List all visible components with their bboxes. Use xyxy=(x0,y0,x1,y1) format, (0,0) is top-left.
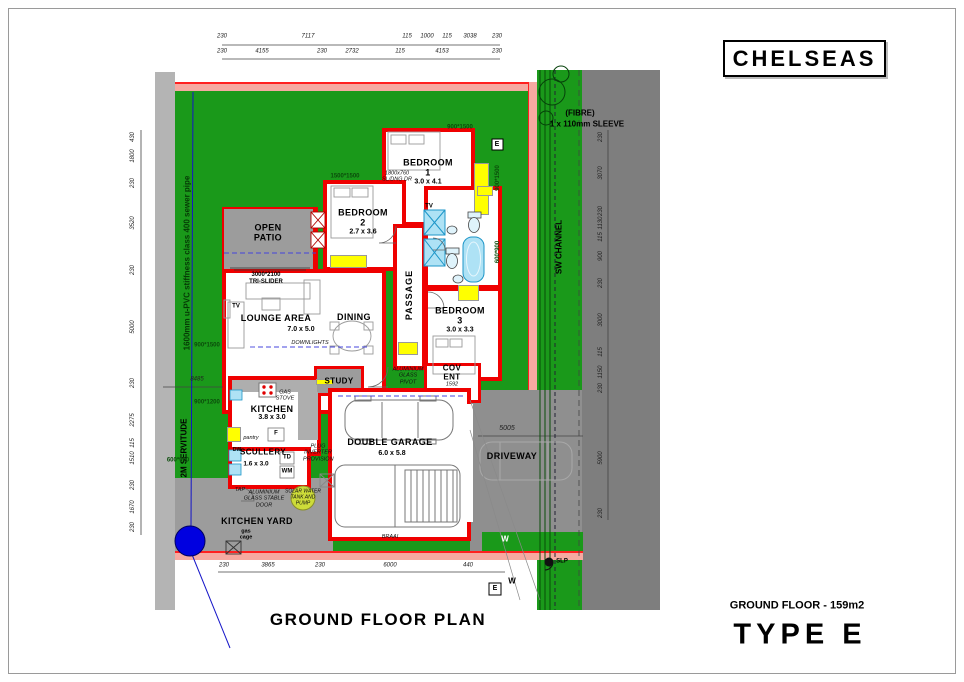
tri-slider-label: 3000*2100 TRI-SLIDER xyxy=(249,272,283,286)
dim-bottom-4: 440 xyxy=(463,563,473,570)
dim-top1-6: 230 xyxy=(492,34,502,41)
window-label-kitchen-left: 900*1200 xyxy=(194,400,220,407)
dim-top2-3: 2732 xyxy=(345,49,358,56)
garage-size: 6.0 x 5.8 xyxy=(378,450,405,458)
tv-label-lounge: TV xyxy=(232,304,240,311)
bedroom3-label: BEDROOM 3 3.0 x 3.3 xyxy=(435,306,485,335)
solar-tank-label: SOLAR WATER TANK AND PUMP xyxy=(285,489,321,506)
dim-right-5: 900 xyxy=(598,251,604,261)
dim-top2-0: 230 xyxy=(217,49,227,56)
dim-top1-2: 115 xyxy=(402,34,412,41)
inverter-label: PLUG INVERTER PROVISION xyxy=(303,444,333,463)
stable-door-label: ALUMINIUM GLASS STABLE DOOR xyxy=(243,490,285,509)
dim-top2-1: 4155 xyxy=(255,49,268,56)
dining-table-outline xyxy=(330,321,373,354)
passage-label: PASSAGE xyxy=(404,270,414,320)
dim-top1-1: 7117 xyxy=(302,34,315,41)
floor-area-label: GROUND FLOOR - 159m2 xyxy=(730,600,864,613)
dim-left-1: 1800 xyxy=(130,149,136,162)
dim-left-2: 230 xyxy=(130,178,136,188)
sliding-door-label: 1800x760 SL/DNG DR xyxy=(377,171,417,184)
dim-right-0: 230 xyxy=(598,132,604,142)
scullery-size: 1.6 x 3.0 xyxy=(243,460,268,467)
gas-cage-label: gas cage xyxy=(240,529,253,542)
dim-left-6: 230 xyxy=(130,378,136,388)
dim-right-2: 230 xyxy=(598,206,604,216)
dim-left-8: 115 xyxy=(130,438,136,448)
dim-bottom-2: 230 xyxy=(315,563,325,570)
pivot-door-label: ALUMINIUM GLASS PIVOT xyxy=(390,367,426,386)
dim-top2-2: 230 xyxy=(317,49,327,56)
dim-bottom-3: 6000 xyxy=(383,563,396,570)
dim-right-9: 1150 xyxy=(598,366,604,379)
dim-left-12: 230 xyxy=(130,522,136,532)
wm-label: WM xyxy=(282,469,293,476)
dim-right-11: 5900 xyxy=(598,451,604,464)
driveway-label: DRIVEWAY xyxy=(487,451,537,461)
window-label-scullery-left: 600*900 xyxy=(167,458,189,465)
dim-left-5: 5000 xyxy=(130,320,136,333)
wall-columns-hatched xyxy=(311,212,325,248)
dw-label: DW xyxy=(233,448,241,454)
scullery-sink-icons xyxy=(229,390,242,475)
dim-top2-5: 4153 xyxy=(435,49,448,56)
bedroom2-label: BEDROOM 2 2.7 x 3.6 xyxy=(338,208,388,237)
pantry-label: pantry xyxy=(243,435,258,441)
dim-yard-width: 8485 xyxy=(190,377,203,384)
downlights-label: DOWNLIGHTS xyxy=(291,340,328,346)
dim-left-4: 230 xyxy=(130,265,136,275)
lounge-label: LOUNGE AREA xyxy=(241,313,312,323)
dim-top1-0: 230 xyxy=(217,34,227,41)
kitchen-yard-label: KITCHEN YARD xyxy=(221,516,293,526)
garage-label: DOUBLE GARAGE xyxy=(347,437,432,447)
bathtub-icon xyxy=(463,237,484,282)
kitchen-label: KITCHEN 3.8 x 3.0 xyxy=(251,404,294,422)
dim-right-4: 115 xyxy=(598,232,604,242)
street-light-pole-icon xyxy=(545,558,554,571)
sw-channel-label: SW CHANNEL xyxy=(555,220,564,274)
development-name: CHELSEAS xyxy=(733,46,877,72)
dim-top1-4: 115 xyxy=(442,34,452,41)
servitude-label: 2M SERVITUDE xyxy=(180,419,189,478)
window-label-bath-right: 600*900 xyxy=(495,241,501,263)
dim-top1-5: 3038 xyxy=(463,34,476,41)
dim-left-3: 3520 xyxy=(130,216,136,229)
gas-cage-icon xyxy=(226,541,241,554)
floor-plan-sheet: CHELSEAS GROUND FLOOR PLAN GROUND FLOOR … xyxy=(0,0,964,682)
dim-bottom-0: 230 xyxy=(219,563,229,570)
dimension-lines xyxy=(141,45,608,572)
w-meter-green: W xyxy=(501,534,509,543)
braai-label: BRAAI xyxy=(382,534,399,540)
dim-driveway-width: 5005 xyxy=(499,425,515,433)
w-meter-bottom: W xyxy=(508,576,516,585)
dim-right-10: 230 xyxy=(598,383,604,393)
gas-stove-label: GAS STOVE xyxy=(273,390,297,403)
plan-title: GROUND FLOOR PLAN xyxy=(270,610,486,630)
window-label-b2-top: 1500*1500 xyxy=(330,174,359,181)
dim-left-10: 230 xyxy=(130,480,136,490)
tv-label-bedroom1: TV xyxy=(425,204,433,211)
title-box: CHELSEAS xyxy=(723,40,886,77)
yard-cross-box xyxy=(320,474,334,487)
stormwater-channel-lines xyxy=(540,70,555,610)
dim-top2-4: 115 xyxy=(395,49,405,56)
slp-label: SLP xyxy=(556,559,568,566)
tri-slider-door-lines xyxy=(230,268,310,270)
plan-linework xyxy=(0,0,964,682)
fibre-label-2: 1 x 110mm SLEEVE xyxy=(550,119,624,128)
open-patio-label: OPEN PATIO xyxy=(254,223,282,244)
dim-right-6: 230 xyxy=(598,278,604,288)
fridge-label: F xyxy=(274,431,278,438)
dim-right-3: 1130 xyxy=(598,217,604,230)
garage-car-pickup xyxy=(335,465,460,527)
dim-right-7: 3000 xyxy=(598,313,604,326)
dim-right-12: 230 xyxy=(598,508,604,518)
e-meter-bottom: E xyxy=(493,585,498,593)
dim-left-9: 1510 xyxy=(130,451,136,464)
fibre-label-1: (FIBRE) xyxy=(565,108,594,117)
lounge-size: 7.0 x 5.0 xyxy=(287,326,314,334)
window-label-b1-right: 900*1500 xyxy=(495,165,501,191)
dim-right-1: 3070 xyxy=(598,166,604,179)
scullery-label: SCULLERY xyxy=(240,447,286,456)
td-label: TD xyxy=(283,455,291,462)
meter-boxes xyxy=(489,139,503,595)
door-swing-arcs xyxy=(241,226,445,501)
e-meter-top: E xyxy=(495,141,500,149)
window-label-b1-top: 900*1500 xyxy=(447,125,473,132)
type-label: TYPE E xyxy=(733,618,866,651)
window-label-lounge-left: 900*1500 xyxy=(194,343,220,350)
dim-bottom-1: 3865 xyxy=(261,563,274,570)
sewer-manhole xyxy=(175,526,205,556)
sewer-pipe-label: 1600mm u-PVC stiffness class 400 sewer p… xyxy=(183,176,192,351)
dining-label: DINING xyxy=(337,312,371,322)
dim-right-8: 115 xyxy=(598,347,604,357)
dim-top2-6: 230 xyxy=(492,49,502,56)
dim-left-7: 2275 xyxy=(130,413,136,426)
cov-ent-label: COV ENT 1592 xyxy=(443,364,462,389)
dim-left-0: 430 xyxy=(130,132,136,142)
dim-top1-3: 1000 xyxy=(420,34,433,41)
dim-left-11: 1670 xyxy=(130,500,136,513)
study-label: STUDY xyxy=(324,376,353,385)
